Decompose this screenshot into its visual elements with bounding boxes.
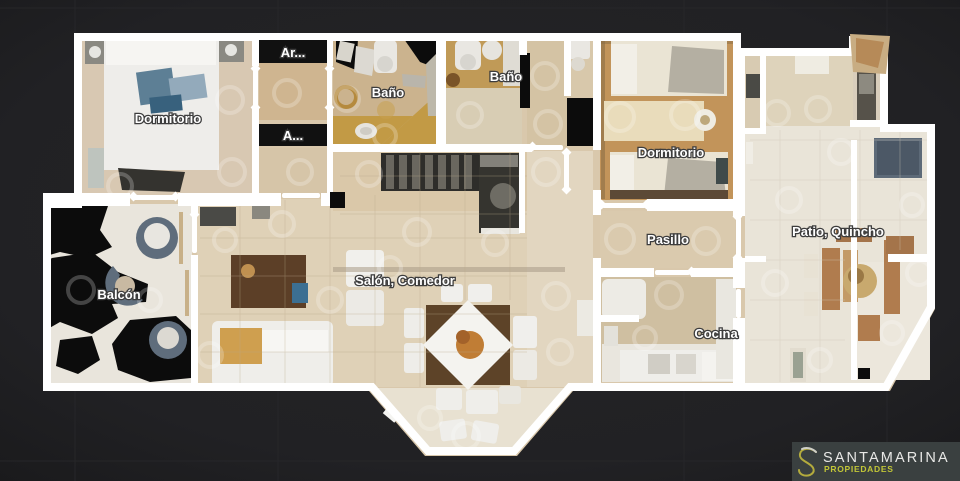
svg-text:Dormitorio: Dormitorio bbox=[638, 145, 705, 160]
svg-text:Dormitorio: Dormitorio bbox=[135, 111, 202, 126]
svg-text:Baño: Baño bbox=[490, 69, 523, 84]
svg-text:Balcón: Balcón bbox=[97, 287, 140, 302]
svg-text:Baño: Baño bbox=[372, 85, 405, 100]
svg-text:Patio, Quincho: Patio, Quincho bbox=[792, 224, 884, 239]
svg-text:Ar...: Ar... bbox=[281, 45, 306, 60]
svg-text:PROPIEDADES: PROPIEDADES bbox=[824, 464, 894, 474]
svg-text:A...: A... bbox=[283, 128, 303, 143]
svg-text:Pasillo: Pasillo bbox=[647, 232, 689, 247]
svg-text:Salón, Comedor: Salón, Comedor bbox=[355, 273, 455, 288]
svg-text:Cocina: Cocina bbox=[694, 326, 738, 341]
